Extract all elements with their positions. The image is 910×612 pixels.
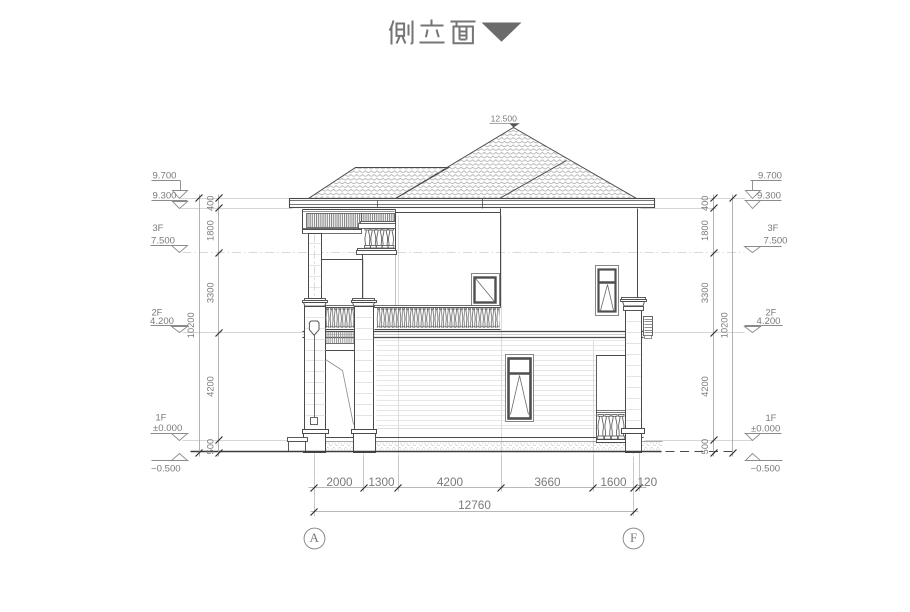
svg-text:500: 500 (206, 439, 216, 455)
svg-text:500: 500 (700, 439, 710, 455)
svg-text:10200: 10200 (720, 312, 730, 338)
svg-text:12.500: 12.500 (491, 113, 518, 123)
svg-text:7.500: 7.500 (764, 235, 788, 246)
svg-text:4200: 4200 (437, 475, 464, 489)
svg-text:1F: 1F (766, 413, 777, 423)
svg-text:−0.500: −0.500 (751, 463, 781, 474)
svg-text:2000: 2000 (326, 475, 353, 489)
svg-text:1800: 1800 (700, 220, 710, 241)
svg-text:3300: 3300 (206, 282, 216, 303)
svg-text:1600: 1600 (600, 475, 627, 489)
svg-text:1300: 1300 (368, 475, 395, 489)
svg-text:4.200: 4.200 (757, 316, 781, 327)
svg-text:9.300: 9.300 (153, 190, 177, 201)
svg-text:1800: 1800 (206, 220, 216, 241)
svg-text:±0.000: ±0.000 (153, 423, 182, 434)
svg-text:120: 120 (638, 475, 658, 489)
svg-text:12760: 12760 (458, 498, 491, 512)
svg-text:3F: 3F (153, 223, 164, 233)
svg-text:9.700: 9.700 (758, 171, 782, 182)
svg-text:1F: 1F (156, 412, 167, 422)
svg-text:F: F (630, 530, 637, 545)
svg-text:3300: 3300 (700, 282, 710, 303)
svg-text:−0.500: −0.500 (151, 464, 181, 475)
svg-text:4200: 4200 (206, 376, 216, 397)
svg-text:3F: 3F (768, 223, 779, 233)
svg-text:4.200: 4.200 (150, 316, 174, 327)
svg-text:400: 400 (700, 196, 710, 212)
svg-text:400: 400 (206, 196, 216, 212)
svg-text:A: A (310, 530, 320, 545)
svg-text:3660: 3660 (534, 475, 561, 489)
svg-text:9.700: 9.700 (153, 171, 177, 182)
svg-text:4200: 4200 (700, 376, 710, 397)
svg-text:±0.000: ±0.000 (751, 424, 780, 435)
svg-text:9.300: 9.300 (757, 190, 781, 201)
svg-text:7.500: 7.500 (151, 235, 175, 246)
